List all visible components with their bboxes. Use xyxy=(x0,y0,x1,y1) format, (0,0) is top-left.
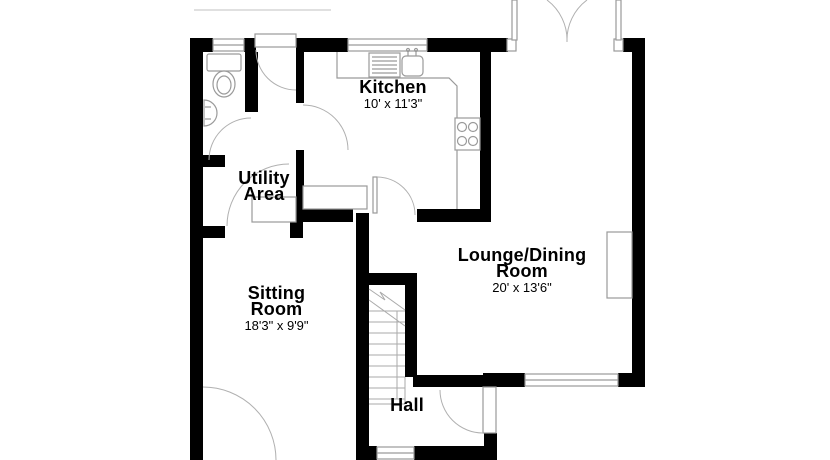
chimney-breast-icon xyxy=(607,232,632,298)
hob-icon xyxy=(455,118,480,150)
wall-hall-north xyxy=(413,375,483,387)
hall-window-icon xyxy=(377,447,414,459)
wall-kitchen-south-b xyxy=(417,209,491,222)
floorplan-drawing xyxy=(0,0,830,460)
room-name: Room xyxy=(200,301,353,317)
utility-kitchen-door-icon xyxy=(303,105,348,150)
room-name: Area xyxy=(214,186,314,202)
wall-utility-south-stub xyxy=(203,226,225,238)
wall-sitting-east xyxy=(356,213,369,460)
wall-right xyxy=(632,38,645,387)
room-label-kitchen: Kitchen 10' x 11'3" xyxy=(330,79,456,111)
wall-kitchen-west-upper xyxy=(296,52,304,103)
back-door-icon xyxy=(255,34,296,90)
floorplan: Kitchen 10' x 11'3" Utility Area Sitting… xyxy=(0,0,830,460)
room-label-sitting: Sitting Room 18'3" x 9'9" xyxy=(200,285,353,333)
room-dims: 10' x 11'3" xyxy=(330,97,456,111)
wall-top-d xyxy=(427,38,508,52)
room-name: Hall xyxy=(369,397,445,413)
room-name: Room xyxy=(438,263,606,279)
wall-wc-east xyxy=(245,52,258,112)
wall-top-b xyxy=(244,38,256,52)
wc-window-icon xyxy=(213,39,244,51)
wall-lounge-south-left xyxy=(483,373,525,387)
wall-front-door-stub xyxy=(484,433,497,448)
wall-lounge-south-right xyxy=(618,373,645,387)
wall-top-c xyxy=(296,38,348,52)
stairs-icon xyxy=(369,289,405,404)
room-name: Kitchen xyxy=(330,79,456,95)
room-label-utility: Utility Area xyxy=(214,170,314,202)
french-doors-icon xyxy=(507,0,623,51)
room-label-lounge: Lounge/Dining Room 20' x 13'6" xyxy=(438,247,606,295)
wall-stairs-east xyxy=(405,273,417,377)
sitting-room-door-icon xyxy=(203,387,276,460)
room-dims: 20' x 13'6" xyxy=(438,281,606,295)
wall-kitchen-east xyxy=(480,52,491,222)
wall-left xyxy=(190,40,203,460)
kitchen-sink-icon xyxy=(369,49,423,78)
wall-wc-south-stub xyxy=(203,155,225,167)
room-dims: 18'3" x 9'9" xyxy=(200,319,353,333)
toilet-icon xyxy=(207,54,241,97)
wash-basin-icon xyxy=(204,100,217,126)
wc-door-icon xyxy=(209,118,251,160)
lounge-window-icon xyxy=(525,374,618,386)
room-label-hall: Hall xyxy=(369,397,445,413)
wall-top-a xyxy=(190,38,213,52)
front-door-icon xyxy=(440,387,496,433)
wall-hall-south-b xyxy=(414,446,497,460)
kitchen-lounge-door-icon xyxy=(373,177,415,215)
